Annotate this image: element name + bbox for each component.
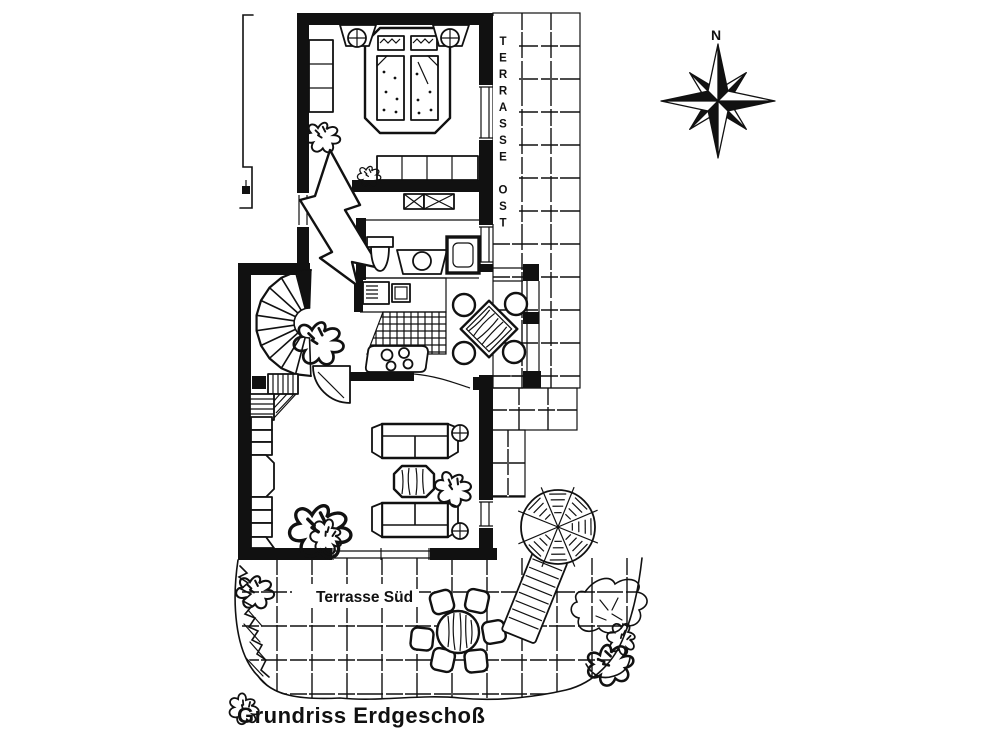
dining-chair <box>453 342 475 364</box>
stove <box>363 282 410 304</box>
entrance-arrow <box>300 150 380 286</box>
bathroom <box>366 220 479 278</box>
floor-hatch-boxes <box>404 194 454 209</box>
nightstand-lamp <box>340 25 376 47</box>
coffee-table <box>394 466 434 497</box>
living-room-door <box>313 366 350 403</box>
nightstand-lamp <box>433 25 469 47</box>
entrance-marker <box>242 186 250 194</box>
living-east-window <box>479 502 493 526</box>
plan-title: Grundriss Erdgeschoß <box>237 703 485 729</box>
property-outline <box>240 15 253 208</box>
plant <box>305 123 340 153</box>
shower <box>447 237 479 273</box>
terrace-east-south-paving <box>490 388 577 497</box>
closet-row <box>377 156 478 180</box>
compass-north-label: N <box>711 27 721 43</box>
compass-rose <box>661 44 775 158</box>
floor-lamp <box>452 523 468 539</box>
mattress <box>377 56 404 120</box>
dining-chair <box>453 294 475 316</box>
pillow <box>411 36 437 50</box>
wall-cabinet <box>251 417 274 548</box>
dining-chair <box>503 341 525 363</box>
living-room <box>251 417 477 559</box>
bath-east-window <box>479 227 493 262</box>
terrace-east-label: TERRASSE OST <box>496 34 510 236</box>
terrace-south-label: Terrasse Süd <box>310 589 419 607</box>
kitchen <box>360 278 470 388</box>
dining-chair <box>505 293 527 315</box>
wardrobe <box>309 40 333 112</box>
sofa <box>372 503 458 537</box>
parasol <box>518 487 598 567</box>
mattress <box>411 56 438 120</box>
sofa <box>372 424 458 458</box>
living-south-window <box>333 548 430 560</box>
cooktop <box>366 346 428 372</box>
pillow <box>378 36 404 50</box>
plant <box>294 322 344 364</box>
straight-stairs <box>250 374 298 420</box>
floor-lamp <box>452 425 468 441</box>
sink <box>397 250 447 274</box>
garden-table <box>437 611 479 653</box>
double-bed <box>365 28 450 133</box>
dining-area <box>453 293 527 364</box>
bedroom-east-window <box>479 87 493 138</box>
floor-plan-page: TERRASSE OST Terrasse Süd Grundriss Erdg… <box>0 0 1000 750</box>
